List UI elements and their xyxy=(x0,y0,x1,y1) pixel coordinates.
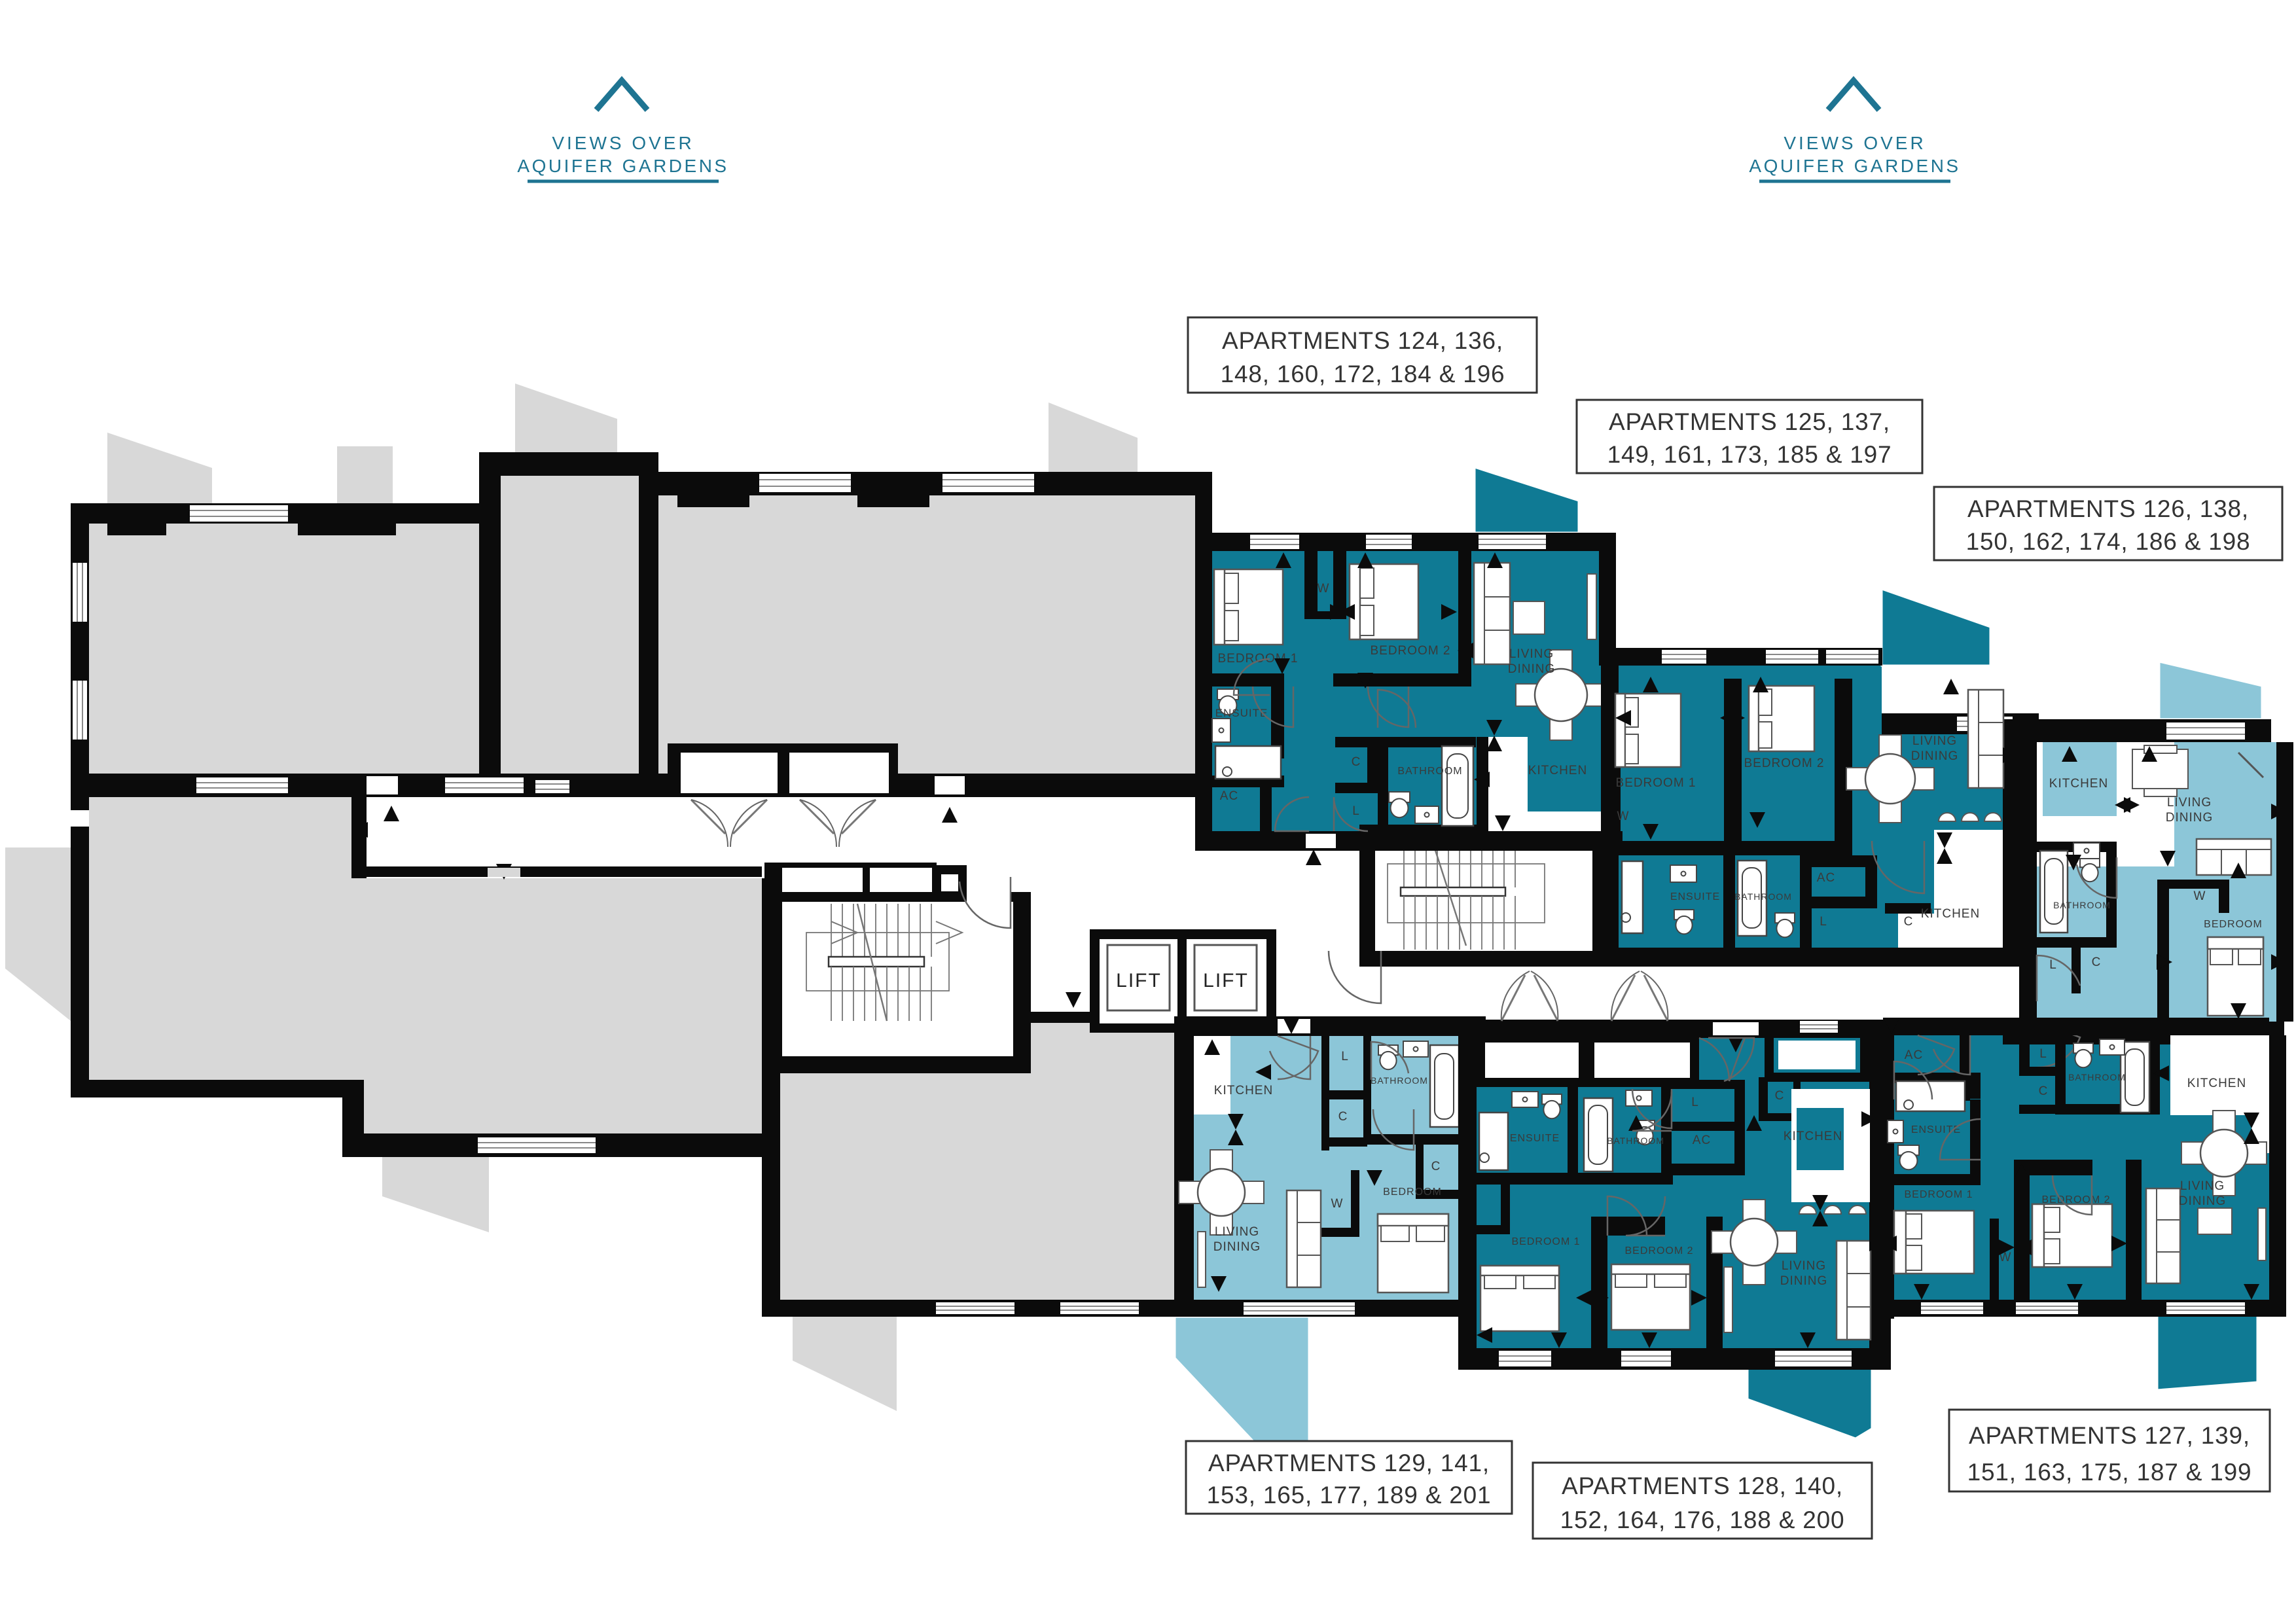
svg-text:AQUIFER GARDENS: AQUIFER GARDENS xyxy=(517,156,728,176)
svg-text:KITCHEN: KITCHEN xyxy=(2187,1077,2246,1090)
svg-text:L: L xyxy=(2039,1047,2047,1061)
svg-text:151, 163, 175, 187 & 199: 151, 163, 175, 187 & 199 xyxy=(1967,1459,2252,1486)
svg-text:153, 165, 177, 189 & 201: 153, 165, 177, 189 & 201 xyxy=(1207,1482,1492,1508)
svg-text:VIEWS OVER: VIEWS OVER xyxy=(1784,133,1926,153)
svg-text:APARTMENTS 129, 141,: APARTMENTS 129, 141, xyxy=(1208,1450,1490,1476)
svg-text:C: C xyxy=(1431,1160,1441,1173)
svg-text:LIVING: LIVING xyxy=(1509,647,1554,661)
svg-text:BEDROOM 2: BEDROOM 2 xyxy=(2041,1194,2110,1205)
svg-text:L: L xyxy=(1691,1096,1699,1109)
svg-text:APARTMENTS 124, 136,: APARTMENTS 124, 136, xyxy=(1222,327,1503,354)
svg-text:BEDROOM 2: BEDROOM 2 xyxy=(1370,644,1450,658)
svg-text:LIFT: LIFT xyxy=(1203,970,1249,991)
svg-text:KITCHEN: KITCHEN xyxy=(1214,1084,1273,1097)
svg-text:148, 160, 172, 184 & 196: 148, 160, 172, 184 & 196 xyxy=(1221,361,1505,387)
svg-text:W: W xyxy=(1331,1197,1344,1211)
svg-text:VIEWS OVER: VIEWS OVER xyxy=(552,133,694,153)
svg-text:LIVING: LIVING xyxy=(2167,796,2212,810)
svg-text:AC: AC xyxy=(1693,1133,1711,1147)
svg-text:DINING: DINING xyxy=(2179,1194,2227,1208)
svg-text:LIVING: LIVING xyxy=(1912,734,1957,748)
svg-text:BATHROOM: BATHROOM xyxy=(1397,766,1462,777)
svg-text:152, 164, 176, 188 & 200: 152, 164, 176, 188 & 200 xyxy=(1560,1507,1845,1533)
svg-text:BEDROOM 2: BEDROOM 2 xyxy=(1624,1245,1693,1257)
svg-text:LIVING: LIVING xyxy=(1782,1259,1826,1273)
svg-text:APARTMENTS 128, 140,: APARTMENTS 128, 140, xyxy=(1562,1472,1843,1499)
svg-text:W: W xyxy=(1318,582,1330,596)
svg-text:AQUIFER GARDENS: AQUIFER GARDENS xyxy=(1749,156,1960,176)
svg-text:149, 161, 173, 185 & 197: 149, 161, 173, 185 & 197 xyxy=(1607,441,1892,468)
svg-text:BEDROOM: BEDROOM xyxy=(2204,919,2263,930)
svg-text:LIVING: LIVING xyxy=(1215,1225,1259,1239)
svg-text:DINING: DINING xyxy=(1780,1274,1828,1288)
svg-text:C: C xyxy=(1775,1089,1785,1103)
svg-text:C: C xyxy=(1338,1110,1348,1124)
svg-text:L: L xyxy=(1820,915,1827,929)
svg-text:DINING: DINING xyxy=(1508,662,1556,676)
svg-text:BATHROOM: BATHROOM xyxy=(2053,900,2111,910)
svg-text:BEDROOM: BEDROOM xyxy=(1383,1186,1442,1198)
svg-text:BEDROOM 2: BEDROOM 2 xyxy=(1744,757,1824,770)
svg-text:APARTMENTS 126, 138,: APARTMENTS 126, 138, xyxy=(1967,495,2249,522)
svg-text:BATHROOM: BATHROOM xyxy=(1734,891,1792,902)
svg-text:W: W xyxy=(1617,810,1630,823)
svg-text:C: C xyxy=(2039,1084,2049,1098)
svg-text:BEDROOM 1: BEDROOM 1 xyxy=(1904,1189,1973,1200)
svg-text:KITCHEN: KITCHEN xyxy=(2049,777,2108,791)
svg-text:KITCHEN: KITCHEN xyxy=(1921,907,1980,921)
svg-text:KITCHEN: KITCHEN xyxy=(1784,1130,1842,1143)
svg-text:BATHROOM: BATHROOM xyxy=(1607,1135,1664,1146)
svg-text:APARTMENTS 127, 139,: APARTMENTS 127, 139, xyxy=(1969,1422,2250,1449)
svg-text:AC: AC xyxy=(1817,871,1835,885)
svg-text:ENSUITE: ENSUITE xyxy=(1510,1133,1560,1144)
svg-text:AC: AC xyxy=(1905,1048,1923,1062)
svg-text:C: C xyxy=(1352,755,1361,769)
svg-text:APARTMENTS 125, 137,: APARTMENTS 125, 137, xyxy=(1609,408,1890,435)
svg-text:AC: AC xyxy=(1220,789,1238,803)
svg-text:ENSUITE: ENSUITE xyxy=(1670,891,1720,902)
svg-text:KITCHEN: KITCHEN xyxy=(1528,764,1587,777)
svg-text:BATHROOM: BATHROOM xyxy=(2068,1072,2126,1082)
svg-text:DINING: DINING xyxy=(1213,1240,1261,1254)
svg-text:DINING: DINING xyxy=(1911,749,1959,763)
svg-text:BEDROOM 1: BEDROOM 1 xyxy=(1615,776,1696,790)
svg-text:DINING: DINING xyxy=(2166,811,2214,825)
svg-text:BATHROOM: BATHROOM xyxy=(1371,1075,1428,1086)
svg-text:W: W xyxy=(2194,889,2206,903)
svg-text:150, 162, 174, 186 & 198: 150, 162, 174, 186 & 198 xyxy=(1966,528,2251,555)
svg-text:LIVING: LIVING xyxy=(2180,1179,2225,1193)
svg-text:L: L xyxy=(1352,804,1360,818)
svg-text:LIFT: LIFT xyxy=(1116,970,1162,991)
svg-text:C: C xyxy=(2092,955,2102,969)
svg-text:L: L xyxy=(1341,1050,1349,1063)
svg-text:C: C xyxy=(1904,915,1914,929)
svg-text:BEDROOM 1: BEDROOM 1 xyxy=(1511,1236,1580,1247)
